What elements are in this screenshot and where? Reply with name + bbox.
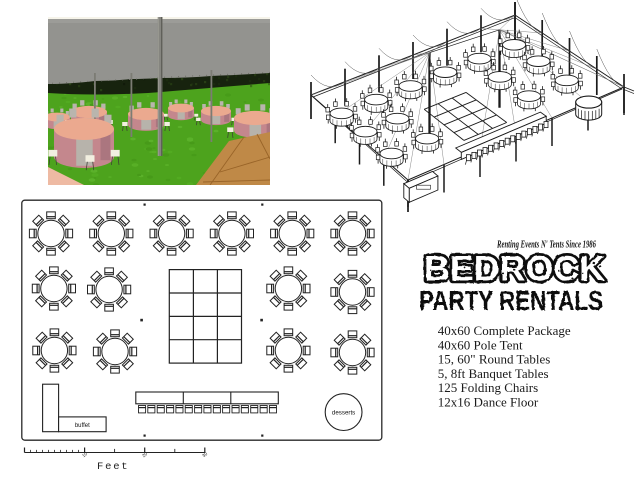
svg-text:40x60 Complete Package: 40x60 Complete Package <box>438 323 571 338</box>
svg-text:Feet: Feet <box>97 461 129 473</box>
svg-text:desserts: desserts <box>332 409 355 416</box>
svg-text:15, 60" Round Tables: 15, 60" Round Tables <box>438 352 551 367</box>
svg-text:125 Folding Chairs: 125 Folding Chairs <box>438 380 538 395</box>
svg-text:buffet: buffet <box>75 423 90 429</box>
svg-text:5, 8ft Banquet Tables: 5, 8ft Banquet Tables <box>438 366 549 381</box>
svg-text:12x16 Dance Floor: 12x16 Dance Floor <box>438 395 539 410</box>
svg-text:40x60 Pole Tent: 40x60 Pole Tent <box>438 337 523 352</box>
svg-text:PARTY RENTALS: PARTY RENTALS <box>419 285 603 316</box>
